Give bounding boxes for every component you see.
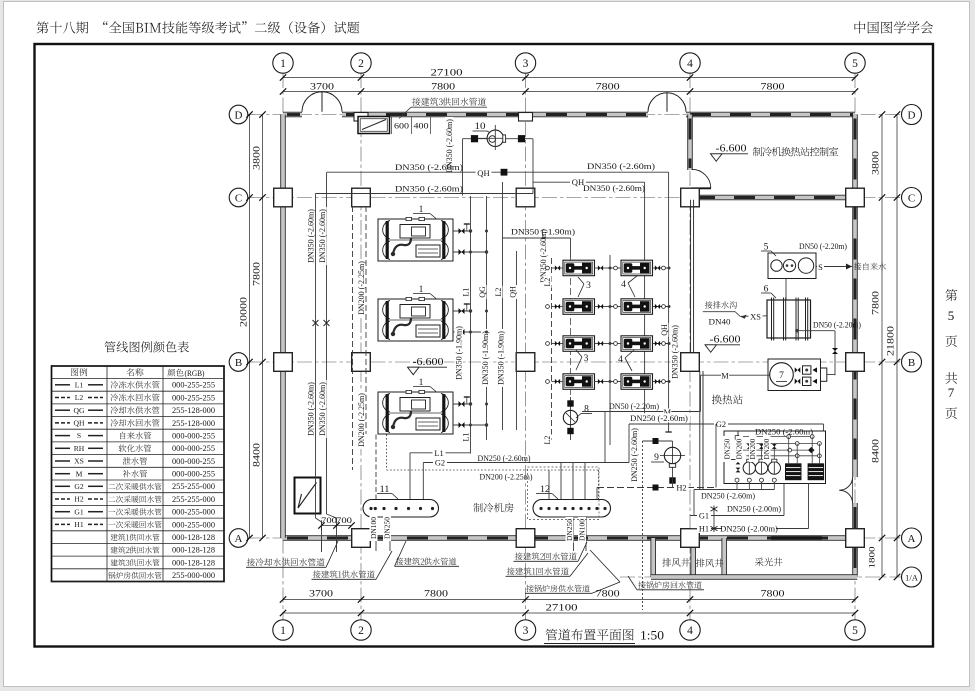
svg-text:DN350 (-1.90m): DN350 (-1.90m) — [511, 227, 575, 237]
svg-text:L2: L2 — [543, 278, 552, 287]
svg-text:3: 3 — [523, 58, 529, 70]
svg-text:2: 2 — [358, 58, 364, 70]
svg-text:DN350 (-2.60m): DN350 (-2.60m) — [318, 382, 327, 436]
svg-text:QH: QH — [509, 286, 518, 298]
svg-text:QH: QH — [74, 419, 85, 428]
svg-text:000-255-255: 000-255-255 — [172, 393, 215, 402]
svg-text:3800: 3800 — [252, 145, 262, 170]
svg-text:L2: L2 — [75, 393, 84, 402]
svg-text:DN350 (-2.60m): DN350 (-2.60m) — [395, 162, 463, 172]
svg-text:(RGB): (RGB) — [185, 369, 205, 378]
svg-text:3700: 3700 — [309, 589, 334, 599]
svg-text:400: 400 — [414, 122, 429, 131]
svg-text:5: 5 — [948, 308, 955, 323]
svg-text:1800: 1800 — [867, 547, 877, 569]
svg-text:DN250 (-2.60m): DN250 (-2.60m) — [701, 491, 755, 501]
svg-text:DN250 (-2.60m): DN250 (-2.60m) — [630, 428, 639, 482]
svg-text:5: 5 — [852, 625, 858, 637]
svg-text:7800: 7800 — [761, 589, 786, 599]
svg-text:21800: 21800 — [886, 325, 896, 356]
svg-text:4: 4 — [687, 58, 693, 70]
svg-text:000-128-128: 000-128-128 — [172, 546, 215, 555]
svg-text:A: A — [235, 533, 243, 545]
svg-text:G2: G2 — [74, 482, 83, 491]
svg-text:000-255-000: 000-255-000 — [172, 520, 215, 529]
svg-text:C: C — [908, 193, 915, 205]
svg-text:DN200 (-2.25m): DN200 (-2.25m) — [480, 472, 533, 482]
svg-text:L2: L2 — [494, 288, 503, 297]
svg-text:3: 3 — [584, 354, 589, 364]
svg-text:XS: XS — [74, 457, 84, 466]
svg-text:000-128-128: 000-128-128 — [172, 533, 215, 542]
svg-text:A: A — [908, 533, 916, 545]
svg-text:M: M — [76, 469, 83, 478]
svg-text:QH: QH — [660, 324, 669, 336]
svg-text:255-255-000: 255-255-000 — [172, 495, 215, 504]
svg-text:DN200 (-2.25m): DN200 (-2.25m) — [357, 393, 366, 447]
svg-text:8: 8 — [584, 405, 589, 415]
svg-text:27100: 27100 — [431, 68, 464, 78]
svg-text:DN250 (-2.60m): DN250 (-2.60m) — [478, 453, 531, 463]
svg-text:7800: 7800 — [871, 290, 881, 315]
svg-text:G2: G2 — [435, 459, 445, 468]
svg-text:DN250 (-2.00m): DN250 (-2.00m) — [727, 504, 781, 514]
svg-text:DN350 (-1.90m): DN350 (-1.90m) — [455, 326, 464, 380]
svg-text:000-000-255: 000-000-255 — [172, 457, 215, 466]
svg-text:DN350 (-2.60m): DN350 (-2.60m) — [587, 161, 655, 171]
svg-text:D: D — [235, 110, 243, 122]
svg-text:M: M — [721, 372, 729, 381]
svg-text:DN350 (-1.90m): DN350 (-1.90m) — [497, 331, 506, 385]
svg-text:7800: 7800 — [252, 261, 262, 286]
svg-text:DN350 (-2.60m): DN350 (-2.60m) — [395, 183, 463, 193]
svg-text:-6.600: -6.600 — [413, 357, 444, 368]
svg-text:1: 1 — [280, 58, 286, 70]
svg-text:4: 4 — [618, 355, 623, 365]
svg-text:000-255-000: 000-255-000 — [172, 508, 215, 517]
svg-text:7: 7 — [948, 385, 955, 400]
svg-text:9: 9 — [654, 453, 659, 463]
svg-text:DN50 (-2.20m): DN50 (-2.20m) — [813, 320, 861, 330]
svg-text:DN250: DN250 — [724, 438, 732, 459]
svg-text:1:50: 1:50 — [640, 629, 664, 643]
svg-text:7800: 7800 — [596, 82, 621, 92]
svg-text:000-000-255: 000-000-255 — [172, 432, 215, 441]
svg-text:255-128-000: 255-128-000 — [172, 419, 215, 428]
svg-text:S: S — [77, 431, 81, 440]
svg-text:8400: 8400 — [252, 442, 262, 467]
svg-text:H2: H2 — [676, 484, 686, 493]
svg-text:DN50 (-2.20m): DN50 (-2.20m) — [609, 401, 659, 411]
svg-text:000-255-255: 000-255-255 — [172, 381, 215, 390]
svg-text:DN200 (-2.25m): DN200 (-2.25m) — [357, 261, 366, 315]
svg-text:4: 4 — [621, 280, 626, 290]
svg-text:7: 7 — [779, 371, 784, 381]
svg-text:600: 600 — [394, 122, 409, 131]
svg-text:DN350 (-2.60m): DN350 (-2.60m) — [583, 183, 645, 193]
svg-text:DN250 (-2.60m): DN250 (-2.60m) — [755, 426, 813, 436]
svg-text:DN350 (-2.60m): DN350 (-2.60m) — [307, 382, 316, 436]
svg-text:H1: H1 — [699, 525, 709, 534]
svg-text:L1: L1 — [462, 288, 471, 297]
svg-text:3: 3 — [586, 281, 591, 291]
svg-text:DN200: DN200 — [763, 438, 771, 459]
svg-text:B: B — [235, 357, 242, 369]
svg-text:1/A: 1/A — [905, 572, 919, 582]
svg-text:4: 4 — [687, 625, 693, 637]
svg-text:3800: 3800 — [871, 150, 881, 175]
svg-text:H2: H2 — [74, 495, 83, 504]
svg-text:-6.600: -6.600 — [716, 144, 747, 155]
svg-text:DN350 (-1.90m): DN350 (-1.90m) — [481, 331, 490, 385]
svg-text:DN350 (-2.60m): DN350 (-2.60m) — [318, 209, 327, 263]
svg-text:3700: 3700 — [310, 82, 335, 92]
svg-text:DN250: DN250 — [383, 517, 392, 539]
svg-text:255-255-000: 255-255-000 — [172, 482, 215, 491]
svg-text:L1: L1 — [462, 433, 471, 442]
svg-text:27100: 27100 — [546, 603, 579, 613]
svg-text:20000: 20000 — [239, 296, 249, 327]
svg-text:D: D — [908, 110, 916, 122]
svg-text:B: B — [908, 357, 915, 369]
svg-text:-6.600: -6.600 — [710, 335, 741, 346]
svg-text:L1: L1 — [434, 449, 443, 458]
svg-text:DN250 (-2.60m): DN250 (-2.60m) — [630, 413, 688, 423]
svg-text:000-000-255: 000-000-255 — [172, 470, 215, 479]
svg-text:8400: 8400 — [871, 438, 881, 463]
svg-text:5: 5 — [852, 58, 858, 70]
svg-text:255-000-000: 255-000-000 — [172, 571, 215, 580]
svg-text:7800: 7800 — [761, 82, 786, 92]
svg-text:255-128-000: 255-128-000 — [172, 406, 215, 415]
svg-text:G2: G2 — [716, 420, 726, 429]
svg-text:L1: L1 — [75, 380, 84, 389]
svg-text:QG: QG — [74, 406, 85, 415]
svg-text:700: 700 — [321, 515, 337, 525]
svg-text:DN200: DN200 — [749, 438, 757, 459]
svg-text:DN40: DN40 — [709, 317, 731, 327]
svg-text:L2: L2 — [543, 436, 552, 445]
svg-text:DN350 (-2.60m): DN350 (-2.60m) — [307, 209, 316, 263]
svg-text:2: 2 — [358, 625, 364, 637]
svg-text:XS: XS — [750, 312, 761, 321]
svg-text:RH: RH — [74, 444, 85, 453]
svg-text:S: S — [818, 263, 823, 272]
svg-text:10: 10 — [475, 122, 486, 132]
svg-text:7800: 7800 — [424, 589, 449, 599]
svg-text:DN100: DN100 — [578, 519, 587, 541]
svg-text:DN250 (-2.00m): DN250 (-2.00m) — [720, 524, 778, 534]
svg-text:DN250: DN250 — [565, 519, 574, 541]
svg-text:7800: 7800 — [431, 82, 456, 92]
svg-text:700: 700 — [336, 515, 352, 525]
svg-text:G1: G1 — [74, 507, 83, 516]
svg-text:1: 1 — [280, 625, 286, 637]
svg-text:H1: H1 — [74, 520, 83, 529]
svg-text:DN350 (-2.60m): DN350 (-2.60m) — [539, 229, 548, 283]
svg-text:C: C — [235, 193, 242, 205]
svg-text:000-000-255: 000-000-255 — [172, 444, 215, 453]
svg-text:QH: QH — [477, 168, 489, 178]
svg-text:DN350 (-2.60m): DN350 (-2.60m) — [671, 325, 680, 379]
svg-text:DN50 (-2.20m): DN50 (-2.20m) — [799, 241, 847, 251]
svg-text:G1: G1 — [699, 512, 709, 521]
svg-text:000-128-128: 000-128-128 — [172, 558, 215, 567]
svg-text:DN200: DN200 — [736, 438, 744, 459]
svg-text:DN100: DN100 — [369, 517, 378, 539]
svg-text:3: 3 — [523, 625, 529, 637]
svg-text:QG: QG — [478, 286, 487, 298]
